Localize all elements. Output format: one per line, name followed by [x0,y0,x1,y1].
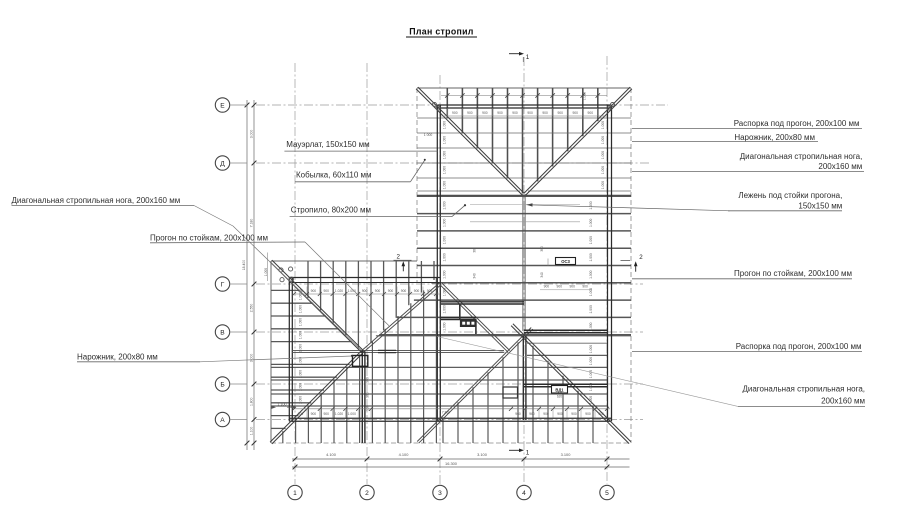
svg-text:900: 900 [414,289,420,293]
svg-text:900: 900 [497,111,503,115]
svg-text:4: 4 [522,490,526,497]
svg-text:1.000: 1.000 [589,345,593,353]
svg-text:1.000: 1.000 [589,370,593,378]
svg-text:1.000: 1.000 [299,383,303,391]
svg-text:900: 900 [452,111,458,115]
svg-text:900: 900 [311,289,317,293]
svg-text:1.000: 1.000 [589,253,593,261]
svg-text:1.000: 1.000 [589,201,593,209]
svg-text:1.000: 1.000 [601,121,605,129]
svg-text:1.000: 1.000 [443,236,447,244]
svg-text:900: 900 [585,412,591,416]
svg-text:16.300: 16.300 [445,461,458,466]
svg-text:900: 900 [298,412,304,416]
svg-text:150х150 мм: 150х150 мм [798,201,842,210]
svg-text:2: 2 [639,254,643,261]
svg-text:900: 900 [572,111,578,115]
svg-text:900: 900 [569,285,575,289]
svg-text:В: В [220,329,225,336]
svg-text:1.000: 1.000 [443,201,447,209]
svg-text:900: 900 [557,412,563,416]
svg-text:Кобылка, 60х110 мм: Кобылка, 60х110 мм [296,170,372,179]
svg-text:4.100: 4.100 [326,452,337,457]
svg-text:1.000: 1.000 [589,357,593,365]
svg-text:900: 900 [544,285,550,289]
svg-text:4.100: 4.100 [399,452,410,457]
svg-text:Е: Е [220,102,225,109]
svg-text:1.000: 1.000 [589,396,593,404]
svg-text:1 000: 1 000 [424,133,433,137]
svg-text:2: 2 [365,490,369,497]
svg-text:900: 900 [542,111,548,115]
svg-text:Прогон по стойкам, 200х100 мм: Прогон по стойкам, 200х100 мм [734,269,852,278]
svg-text:960: 960 [529,412,535,416]
svg-text:1.000: 1.000 [443,136,447,144]
svg-text:900: 900 [388,289,394,293]
svg-text:1.000: 1.000 [443,219,447,227]
svg-text:900: 900 [366,405,370,411]
svg-text:ОС3: ОС3 [561,259,570,264]
svg-text:1.000: 1.000 [299,305,303,313]
svg-text:Распорка под прогон, 200х100 м: Распорка под прогон, 200х100 мм [734,119,860,128]
svg-text:2: 2 [397,253,401,260]
svg-text:900: 900 [366,377,370,383]
svg-text:5: 5 [605,490,609,497]
svg-text:1.000: 1.000 [589,270,593,278]
svg-text:1 100: 1 100 [278,402,287,406]
svg-text:1.000: 1.000 [601,136,605,144]
svg-text:1: 1 [526,54,530,61]
svg-text:А: А [220,417,225,424]
svg-text:3.100: 3.100 [477,452,488,457]
svg-text:900: 900 [362,289,368,293]
svg-text:900: 900 [427,289,433,293]
svg-text:1.000: 1.000 [299,370,303,378]
svg-text:200х160 мм: 200х160 мм [821,397,865,406]
svg-text:900: 900 [467,111,473,115]
svg-text:2.550: 2.550 [249,304,253,313]
svg-text:1.000: 1.000 [601,166,605,174]
svg-text:900: 900 [571,412,577,416]
svg-text:Распорка под прогон, 200х100 м: Распорка под прогон, 200х100 мм [736,342,862,351]
svg-text:900: 900 [311,412,317,416]
svg-text:1.000: 1.000 [601,151,605,159]
svg-text:1.000: 1.000 [443,288,447,296]
svg-text:7.180: 7.180 [249,219,253,228]
svg-text:1: 1 [293,490,297,497]
svg-text:900: 900 [557,111,563,115]
svg-text:Нарожник, 200х80 мм: Нарожник, 200х80 мм [77,352,158,361]
svg-text:900: 900 [375,289,381,293]
svg-text:Диагональная стропильная нога,: Диагональная стропильная нога, [742,384,865,393]
svg-text:1.000: 1.000 [443,322,447,330]
svg-text:Прогон по стойкам, 200х100 мм: Прогон по стойкам, 200х100 мм [150,233,268,242]
svg-text:3: 3 [438,490,442,497]
svg-text:1.000: 1.000 [443,253,447,261]
svg-text:900: 900 [323,412,329,416]
svg-text:200х160 мм: 200х160 мм [818,162,862,171]
svg-text:1.000: 1.000 [264,268,268,276]
svg-text:900: 900 [543,412,549,416]
svg-text:Б: Б [220,381,224,388]
svg-text:1.000: 1.000 [589,322,593,330]
svg-text:1.000: 1.000 [299,331,303,339]
svg-text:900: 900 [512,111,518,115]
svg-text:900: 900 [401,289,407,293]
svg-text:900: 900 [323,289,329,293]
svg-text:1.000: 1.000 [443,151,447,159]
svg-text:1.100: 1.100 [249,427,253,436]
svg-text:900: 900 [582,285,588,289]
svg-text:1.000: 1.000 [299,318,303,326]
svg-text:1.000: 1.000 [601,181,605,189]
svg-text:Г: Г [221,281,225,288]
svg-text:380: 380 [473,247,477,253]
svg-text:18.400: 18.400 [242,260,246,270]
svg-text:1.000: 1.000 [589,219,593,227]
svg-text:1.000: 1.000 [348,412,356,416]
svg-text:7.860: 7.860 [442,411,450,415]
svg-text:1.000: 1.000 [443,305,447,313]
svg-text:900: 900 [588,111,594,115]
svg-text:Диагональная стропильная нога,: Диагональная стропильная нога, [740,152,863,161]
svg-text:1.000: 1.000 [589,383,593,391]
svg-text:1.800: 1.800 [249,397,253,406]
svg-text:Диагональная стропильная нога,: Диагональная стропильная нога, 200х160 м… [12,196,181,205]
svg-text:1.000: 1.000 [589,288,593,296]
svg-text:340: 340 [473,273,477,279]
svg-text:1.000: 1.000 [348,289,356,293]
svg-text:Нарожник, 200х80 мм: Нарожник, 200х80 мм [734,133,815,142]
svg-text:1.000: 1.000 [299,396,303,404]
svg-text:960: 960 [515,412,521,416]
svg-text:900: 900 [598,412,604,416]
svg-text:3.000: 3.000 [249,130,253,139]
svg-text:1.000: 1.000 [443,270,447,278]
svg-text:1.020: 1.020 [335,412,343,416]
svg-text:1.020: 1.020 [335,289,343,293]
svg-text:ВД1: ВД1 [555,387,564,392]
svg-text:Д: Д [220,160,225,167]
svg-text:3.100: 3.100 [561,452,572,457]
svg-text:1.000: 1.000 [299,344,303,352]
svg-text:Стропило, 80х200 мм: Стропило, 80х200 мм [291,206,371,215]
svg-text:Мауэрлат, 150х150 мм: Мауэрлат, 150х150 мм [286,140,369,149]
svg-text:900: 900 [527,111,533,115]
svg-text:План стропил: План стропил [409,27,473,37]
svg-text:380: 380 [540,246,544,252]
svg-text:620: 620 [557,395,563,399]
svg-text:900: 900 [366,392,370,398]
svg-text:1.000: 1.000 [589,305,593,313]
svg-text:900: 900 [557,285,563,289]
svg-text:3.000: 3.000 [249,354,253,363]
svg-text:340: 340 [540,272,544,278]
svg-text:1.000: 1.000 [443,166,447,174]
svg-text:900: 900 [482,111,488,115]
svg-text:1.000: 1.000 [589,236,593,244]
svg-text:1.000: 1.000 [443,121,447,129]
svg-text:1.000: 1.000 [443,181,447,189]
svg-text:Лежень под стойки прогона,: Лежень под стойки прогона, [738,191,842,200]
svg-text:1: 1 [526,450,530,457]
svg-text:1.000: 1.000 [583,92,587,100]
